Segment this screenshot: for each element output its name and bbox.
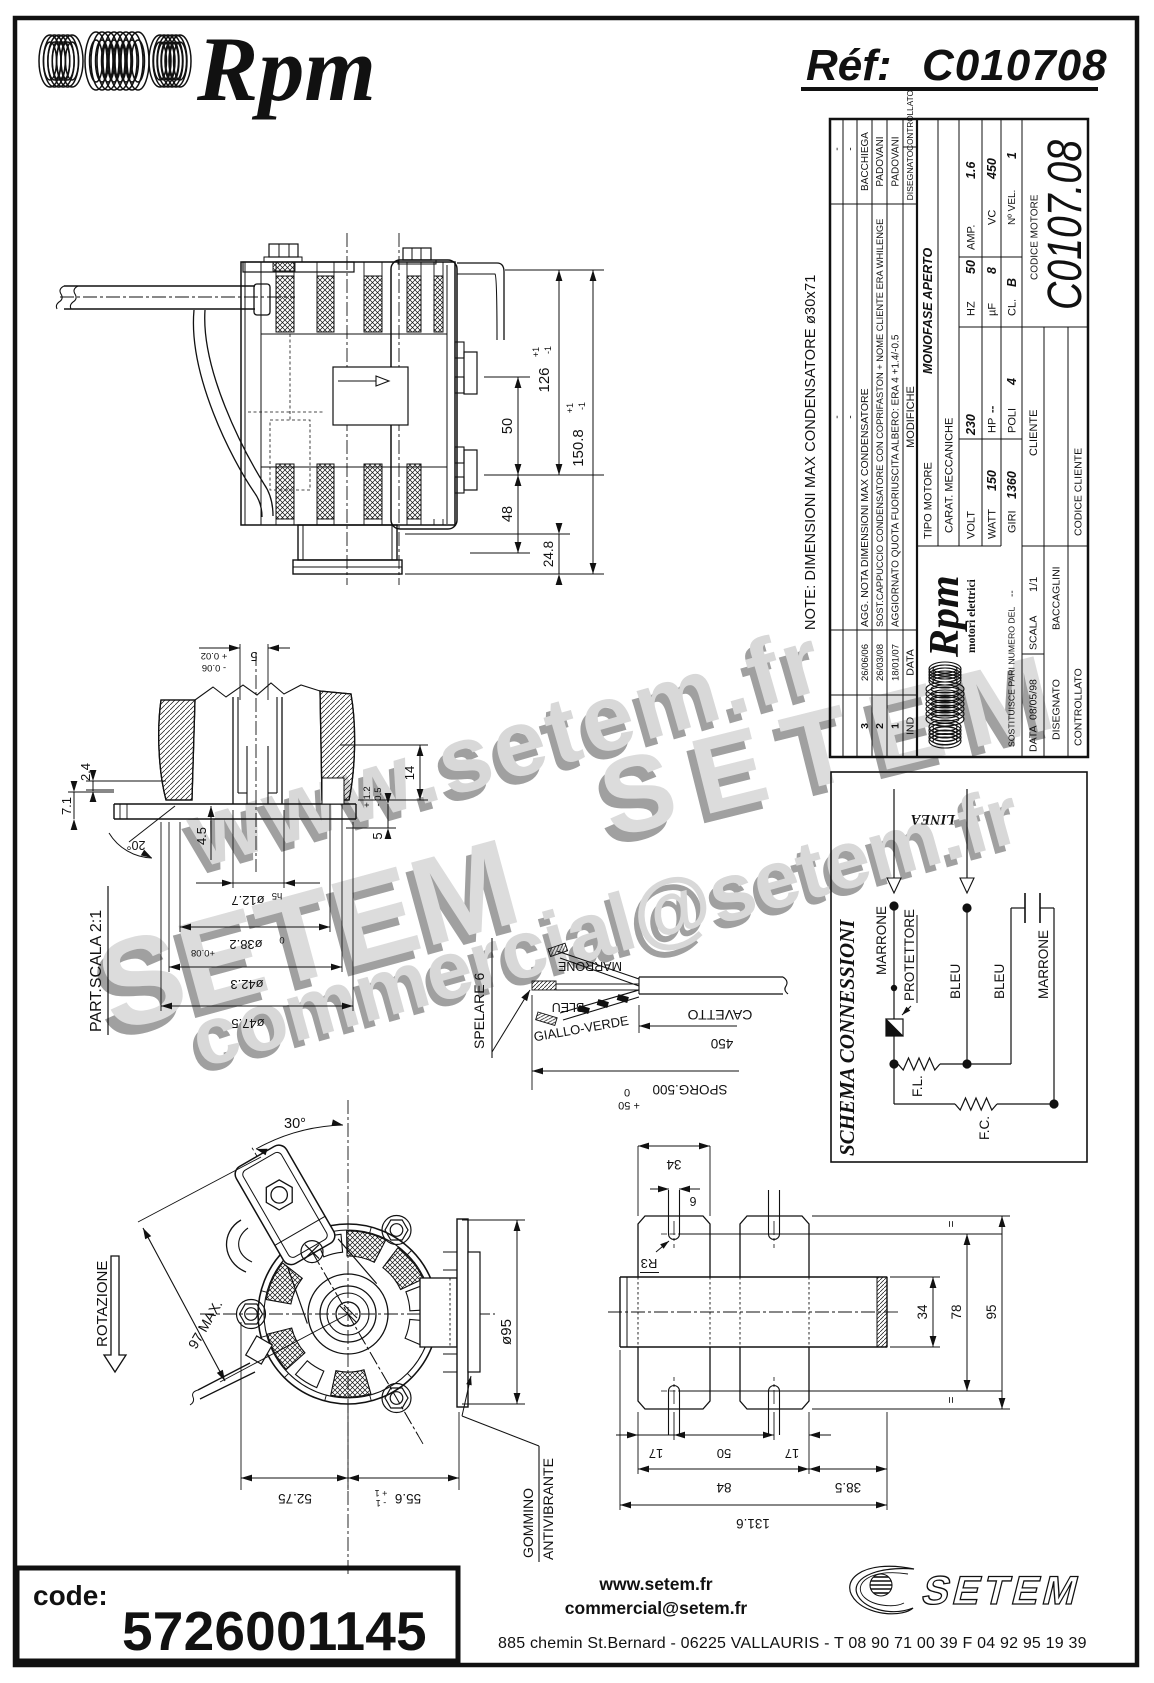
svg-text:MODIFICHE: MODIFICHE	[905, 386, 917, 448]
svg-text:AGGIORNATO QUOTA FUORIUSCITA A: AGGIORNATO QUOTA FUORIUSCITA ALBERO: ERA…	[891, 334, 902, 627]
svg-text:F.L.: F.L.	[910, 1075, 925, 1097]
svg-text:BLEU: BLEU	[992, 964, 1007, 999]
svg-text:--: --	[986, 405, 998, 413]
svg-text:HP: HP	[986, 418, 998, 433]
svg-text:126: 126	[536, 367, 553, 392]
svg-text:AMP.: AMP.	[965, 225, 977, 250]
svg-text:450: 450	[711, 1036, 734, 1051]
svg-text:+ 1: + 1	[375, 1488, 388, 1498]
svg-text:450: 450	[985, 158, 999, 180]
svg-text:6: 6	[689, 1194, 696, 1208]
svg-text:ø47.5: ø47.5	[231, 1016, 264, 1031]
svg-text:1: 1	[1005, 152, 1019, 159]
svg-text:-1: -1	[543, 346, 553, 354]
svg-text:-: -	[845, 147, 857, 151]
svg-text:TIPO MOTORE: TIPO MOTORE	[922, 462, 934, 539]
svg-text:PART.SCALA 2:1: PART.SCALA 2:1	[88, 910, 105, 1032]
svg-text:BLEU: BLEU	[948, 964, 963, 999]
svg-text:PADOVANI: PADOVANI	[875, 136, 886, 186]
svg-text:24.8: 24.8	[541, 541, 556, 567]
svg-text:48: 48	[500, 506, 516, 522]
svg-text:SCALA: SCALA	[1028, 616, 1040, 650]
svg-text:Réf:: Réf:	[806, 41, 892, 90]
svg-text:7.1: 7.1	[59, 797, 74, 815]
svg-text:+ 0.02: + 0.02	[201, 650, 228, 661]
svg-text:HZ: HZ	[965, 301, 977, 316]
svg-text:1360: 1360	[1005, 471, 1019, 499]
svg-text:- 1: - 1	[376, 1498, 387, 1508]
svg-text:SETEM: SETEM	[918, 1568, 1087, 1613]
svg-text:ANTIVIBRANTE: ANTIVIBRANTE	[540, 1458, 556, 1560]
svg-text:DATA: DATA	[905, 649, 917, 675]
svg-text:52.75: 52.75	[278, 1491, 312, 1506]
svg-text:CAVETTO: CAVETTO	[687, 1007, 752, 1023]
svg-text:h5: h5	[272, 890, 283, 901]
svg-text:WATT: WATT	[986, 509, 998, 539]
svg-text:2.4: 2.4	[78, 763, 93, 781]
svg-text:NOTE: DIMENSIONI MAX CONDENSAT: NOTE: DIMENSIONI MAX CONDENSATORE ø30x71	[803, 274, 819, 630]
svg-text:0: 0	[624, 1086, 630, 1098]
svg-text:+1: +1	[565, 403, 575, 413]
svg-text:VOLT: VOLT	[965, 511, 977, 539]
svg-text:ø38.2: ø38.2	[229, 937, 262, 952]
svg-text:CL.: CL.	[1006, 299, 1018, 316]
svg-text:230: 230	[964, 414, 978, 436]
svg-text:55.6: 55.6	[395, 1491, 421, 1506]
svg-text:95: 95	[984, 1304, 999, 1319]
svg-text:C010708: C010708	[922, 41, 1108, 90]
svg-text:+1: +1	[531, 347, 541, 357]
svg-text:DISEGNATO: DISEGNATO	[1051, 679, 1063, 740]
svg-text:- 0.5: - 0.5	[373, 787, 384, 806]
svg-text:µF: µF	[986, 303, 998, 316]
svg-text:Rpm: Rpm	[922, 575, 968, 658]
svg-text:www.setem.fr: www.setem.fr	[598, 1574, 712, 1594]
svg-text:CARAT. MECCANICHE: CARAT. MECCANICHE	[943, 418, 955, 533]
svg-text:-: -	[831, 147, 843, 151]
svg-text:50: 50	[500, 418, 516, 434]
svg-text:18/01/07: 18/01/07	[890, 644, 901, 681]
svg-text:SPORG.500: SPORG.500	[652, 1082, 727, 1097]
svg-text:DISEGNATO: DISEGNATO	[905, 150, 915, 200]
svg-text:VC: VC	[986, 210, 998, 225]
svg-text:3: 3	[859, 723, 871, 729]
svg-text:-: -	[845, 415, 857, 419]
svg-text:14: 14	[402, 766, 417, 780]
svg-text:C0107.08: C0107.08	[1039, 140, 1092, 310]
svg-text:26/06/06: 26/06/06	[860, 644, 871, 681]
svg-text:--: --	[1007, 590, 1018, 597]
svg-text:SOST.CAPPUCCIO CONDENSATORE CO: SOST.CAPPUCCIO CONDENSATORE CON COPRIFAS…	[875, 219, 885, 627]
svg-text:+ 50: + 50	[618, 1099, 640, 1111]
svg-text:ø95: ø95	[498, 1319, 515, 1345]
svg-text:ø42.3: ø42.3	[230, 977, 263, 992]
svg-text:150.8: 150.8	[570, 429, 587, 467]
svg-text:CLIENTE: CLIENTE	[1028, 410, 1040, 456]
svg-text:PADOVANI: PADOVANI	[891, 136, 902, 186]
svg-text:+ 1.2: + 1.2	[362, 786, 373, 807]
svg-text:84: 84	[716, 1480, 732, 1495]
svg-text:code:: code:	[33, 1580, 108, 1611]
svg-text:CODICE CLIENTE: CODICE CLIENTE	[1073, 448, 1085, 536]
svg-text:0: 0	[279, 934, 284, 945]
svg-text:34: 34	[915, 1304, 930, 1320]
svg-text:SPELARE 6: SPELARE 6	[471, 973, 487, 1049]
svg-text:50: 50	[964, 260, 978, 274]
svg-text:ø12.7: ø12.7	[231, 893, 264, 908]
svg-text:B: B	[1005, 278, 1019, 287]
svg-text:1/1: 1/1	[1028, 577, 1040, 592]
svg-text:DATA: DATA	[1028, 726, 1040, 752]
svg-text:=: =	[944, 1220, 958, 1227]
svg-text:78: 78	[949, 1304, 964, 1319]
svg-text:-: -	[831, 415, 843, 419]
svg-text:17: 17	[649, 1446, 663, 1461]
svg-text:1: 1	[890, 723, 902, 729]
svg-text:MARRONE: MARRONE	[1036, 930, 1051, 999]
svg-text:- 0.06: - 0.06	[202, 662, 226, 673]
svg-text:8: 8	[985, 267, 999, 274]
svg-text:38.5: 38.5	[835, 1480, 861, 1495]
svg-text:885 chemin St.Bernard - 0622: 885 chemin St.Bernard - 06225 VALLAURIS …	[498, 1635, 1087, 1652]
svg-text:Nº VEL.: Nº VEL.	[1007, 190, 1018, 225]
svg-text:08/05/98: 08/05/98	[1028, 679, 1040, 720]
svg-text:POLI: POLI	[1006, 408, 1018, 433]
svg-text:R3: R3	[641, 1256, 658, 1271]
svg-text:1.6: 1.6	[964, 161, 978, 179]
svg-text:Rpm: Rpm	[196, 18, 376, 120]
svg-text:30°: 30°	[284, 1116, 306, 1132]
svg-text:motori elettrici: motori elettrici	[966, 578, 978, 653]
svg-text:commercial@setem.fr: commercial@setem.fr	[565, 1598, 748, 1618]
svg-text:4: 4	[1005, 378, 1019, 386]
svg-text:5: 5	[250, 649, 257, 664]
svg-text:LINEA: LINEA	[911, 811, 957, 827]
svg-text:-1: -1	[577, 402, 587, 410]
svg-text:150: 150	[985, 470, 999, 491]
svg-text:17: 17	[785, 1446, 799, 1461]
svg-text:4.5: 4.5	[194, 827, 209, 845]
svg-text:CONTROLLATO: CONTROLLATO	[906, 90, 915, 151]
svg-text:131.6: 131.6	[736, 1516, 770, 1531]
svg-text:GOMMINO: GOMMINO	[520, 1488, 536, 1558]
svg-text:+0.08: +0.08	[191, 947, 215, 958]
svg-text:BACCHIEGA: BACCHIEGA	[860, 132, 871, 191]
svg-text:SOSTITUISCE PARI NUMERO DEL: SOSTITUISCE PARI NUMERO DEL	[1007, 607, 1017, 747]
svg-text:=: =	[944, 1396, 958, 1403]
svg-text:MONOFASE APERTO: MONOFASE APERTO	[921, 248, 935, 374]
svg-text:20°: 20°	[127, 838, 146, 852]
svg-text:5: 5	[370, 832, 385, 839]
svg-text:F.C.: F.C.	[977, 1116, 992, 1140]
svg-text:MARRONE: MARRONE	[558, 959, 622, 973]
svg-text:26/03/08: 26/03/08	[875, 644, 886, 681]
svg-text:GIRI: GIRI	[1006, 510, 1018, 533]
svg-text:SCHEMA CONNESSIONI: SCHEMA CONNESSIONI	[835, 919, 859, 1156]
svg-text:CONTROLLATO: CONTROLLATO	[1073, 668, 1085, 746]
svg-text:ROTAZIONE: ROTAZIONE	[94, 1261, 111, 1347]
svg-text:PROTETTORE: PROTETTORE	[902, 909, 917, 1001]
svg-text:5726001145: 5726001145	[122, 1600, 427, 1662]
svg-text:AGG. NOTA DIMENSIONI MAX CONDE: AGG. NOTA DIMENSIONI MAX CONDENSATORE	[859, 388, 871, 627]
svg-text:2: 2	[874, 723, 886, 729]
svg-text:BACCAGLINI: BACCAGLINI	[1051, 566, 1063, 630]
svg-text:MARRONE: MARRONE	[874, 906, 889, 975]
svg-text:IND: IND	[905, 717, 917, 736]
svg-text:50: 50	[717, 1446, 731, 1461]
svg-text:34: 34	[666, 1157, 682, 1172]
